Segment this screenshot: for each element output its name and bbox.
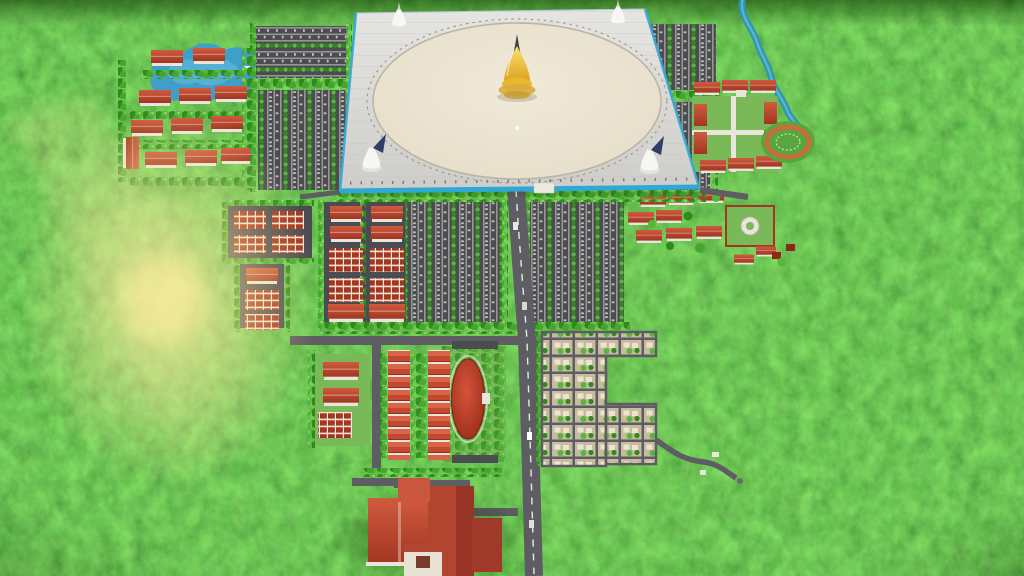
- aerial-master-plan-render: [0, 0, 1024, 576]
- vignette: [0, 0, 1024, 576]
- render-viewport: [0, 0, 1024, 576]
